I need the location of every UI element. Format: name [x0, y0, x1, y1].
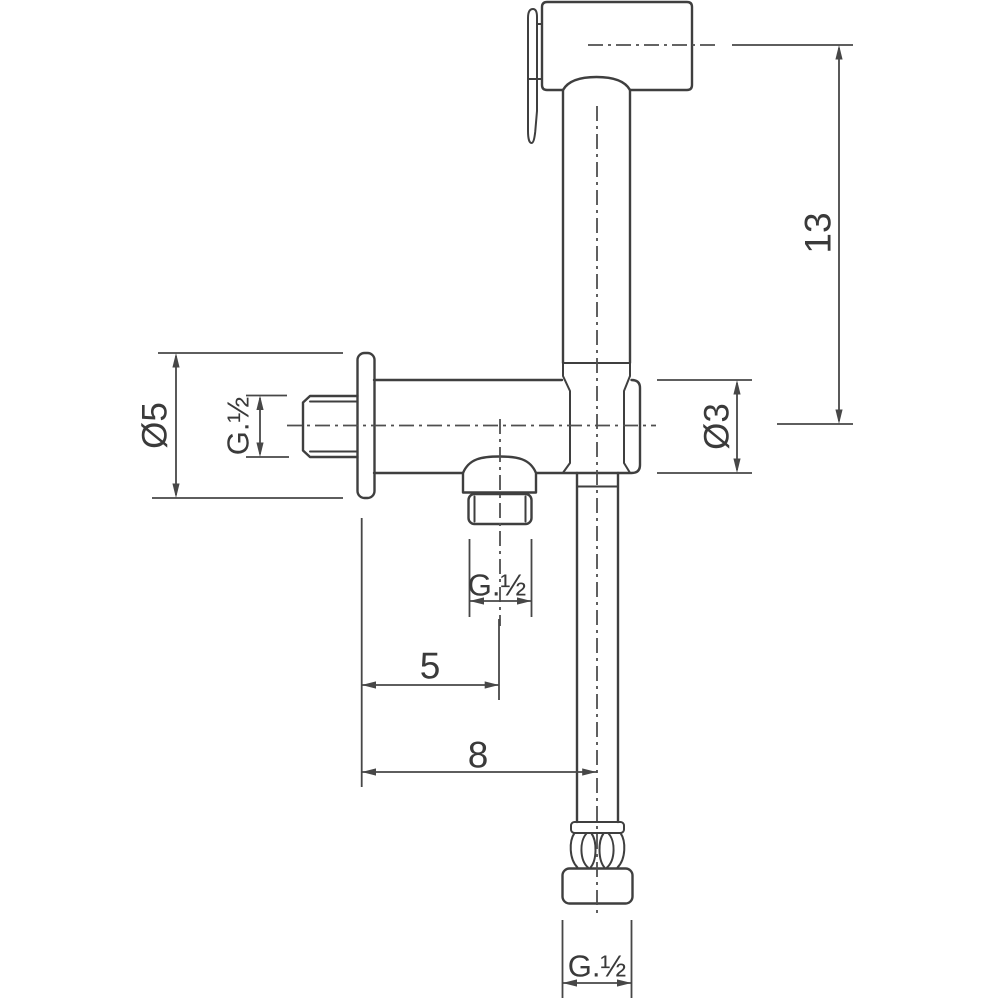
dim-label-valve-body-diameter: Ø3: [698, 403, 737, 450]
arrow-down: [835, 410, 842, 425]
trigger-lever: [528, 9, 537, 143]
valve-body-outline: [374, 380, 640, 473]
spray-head-body: [542, 2, 692, 90]
centerlines: [287, 45, 716, 916]
arrow-up: [835, 45, 842, 60]
dim-label-hose-thread: G.½: [568, 949, 627, 984]
spray-head: [528, 2, 692, 143]
dim-label-outlet-offset: 5: [420, 646, 441, 687]
arrow-up: [256, 396, 263, 411]
dimension-hose-offset: 8: [362, 518, 597, 787]
spray-head-shoulder: [563, 77, 630, 90]
dim-label-hose-offset: 8: [468, 735, 489, 776]
arrow-right: [582, 768, 596, 775]
dimension-hose-thread: G.½: [563, 920, 632, 998]
dim-label-inlet-thread: G.½: [221, 397, 256, 456]
drawing-sheet: Ø5 G.½ Ø3 13 G.½ 5: [0, 0, 1000, 1000]
inlet-nipple: [303, 396, 358, 457]
valve-body: [303, 353, 640, 524]
dim-label-flange-diameter: Ø5: [136, 402, 175, 449]
dim-label-overall-height: 13: [798, 212, 839, 253]
arrow-down: [733, 459, 740, 474]
arrow-left: [362, 768, 376, 775]
arrow-down: [172, 484, 179, 499]
arrow-right: [485, 681, 499, 688]
lever-pivot-ticks: [528, 24, 542, 79]
dimension-valve-body-diameter: Ø3: [657, 380, 752, 473]
technical-drawing: Ø5 G.½ Ø3 13 G.½ 5: [0, 0, 1000, 1000]
dimension-outlet-thread: G.½: [468, 539, 532, 617]
arrow-left: [362, 681, 376, 688]
arrow-up: [733, 380, 740, 395]
dimension-outlet-offset: 5: [362, 619, 499, 700]
fixture-outline: [287, 2, 716, 916]
dimension-overall-height: 13: [732, 45, 853, 424]
dim-label-outlet-thread: G.½: [468, 568, 527, 603]
inlet-nipple-thread-lines: [310, 402, 358, 452]
arrow-up: [172, 353, 179, 368]
arrow-down: [256, 443, 263, 458]
dimension-inlet-thread: G.½: [221, 396, 290, 458]
